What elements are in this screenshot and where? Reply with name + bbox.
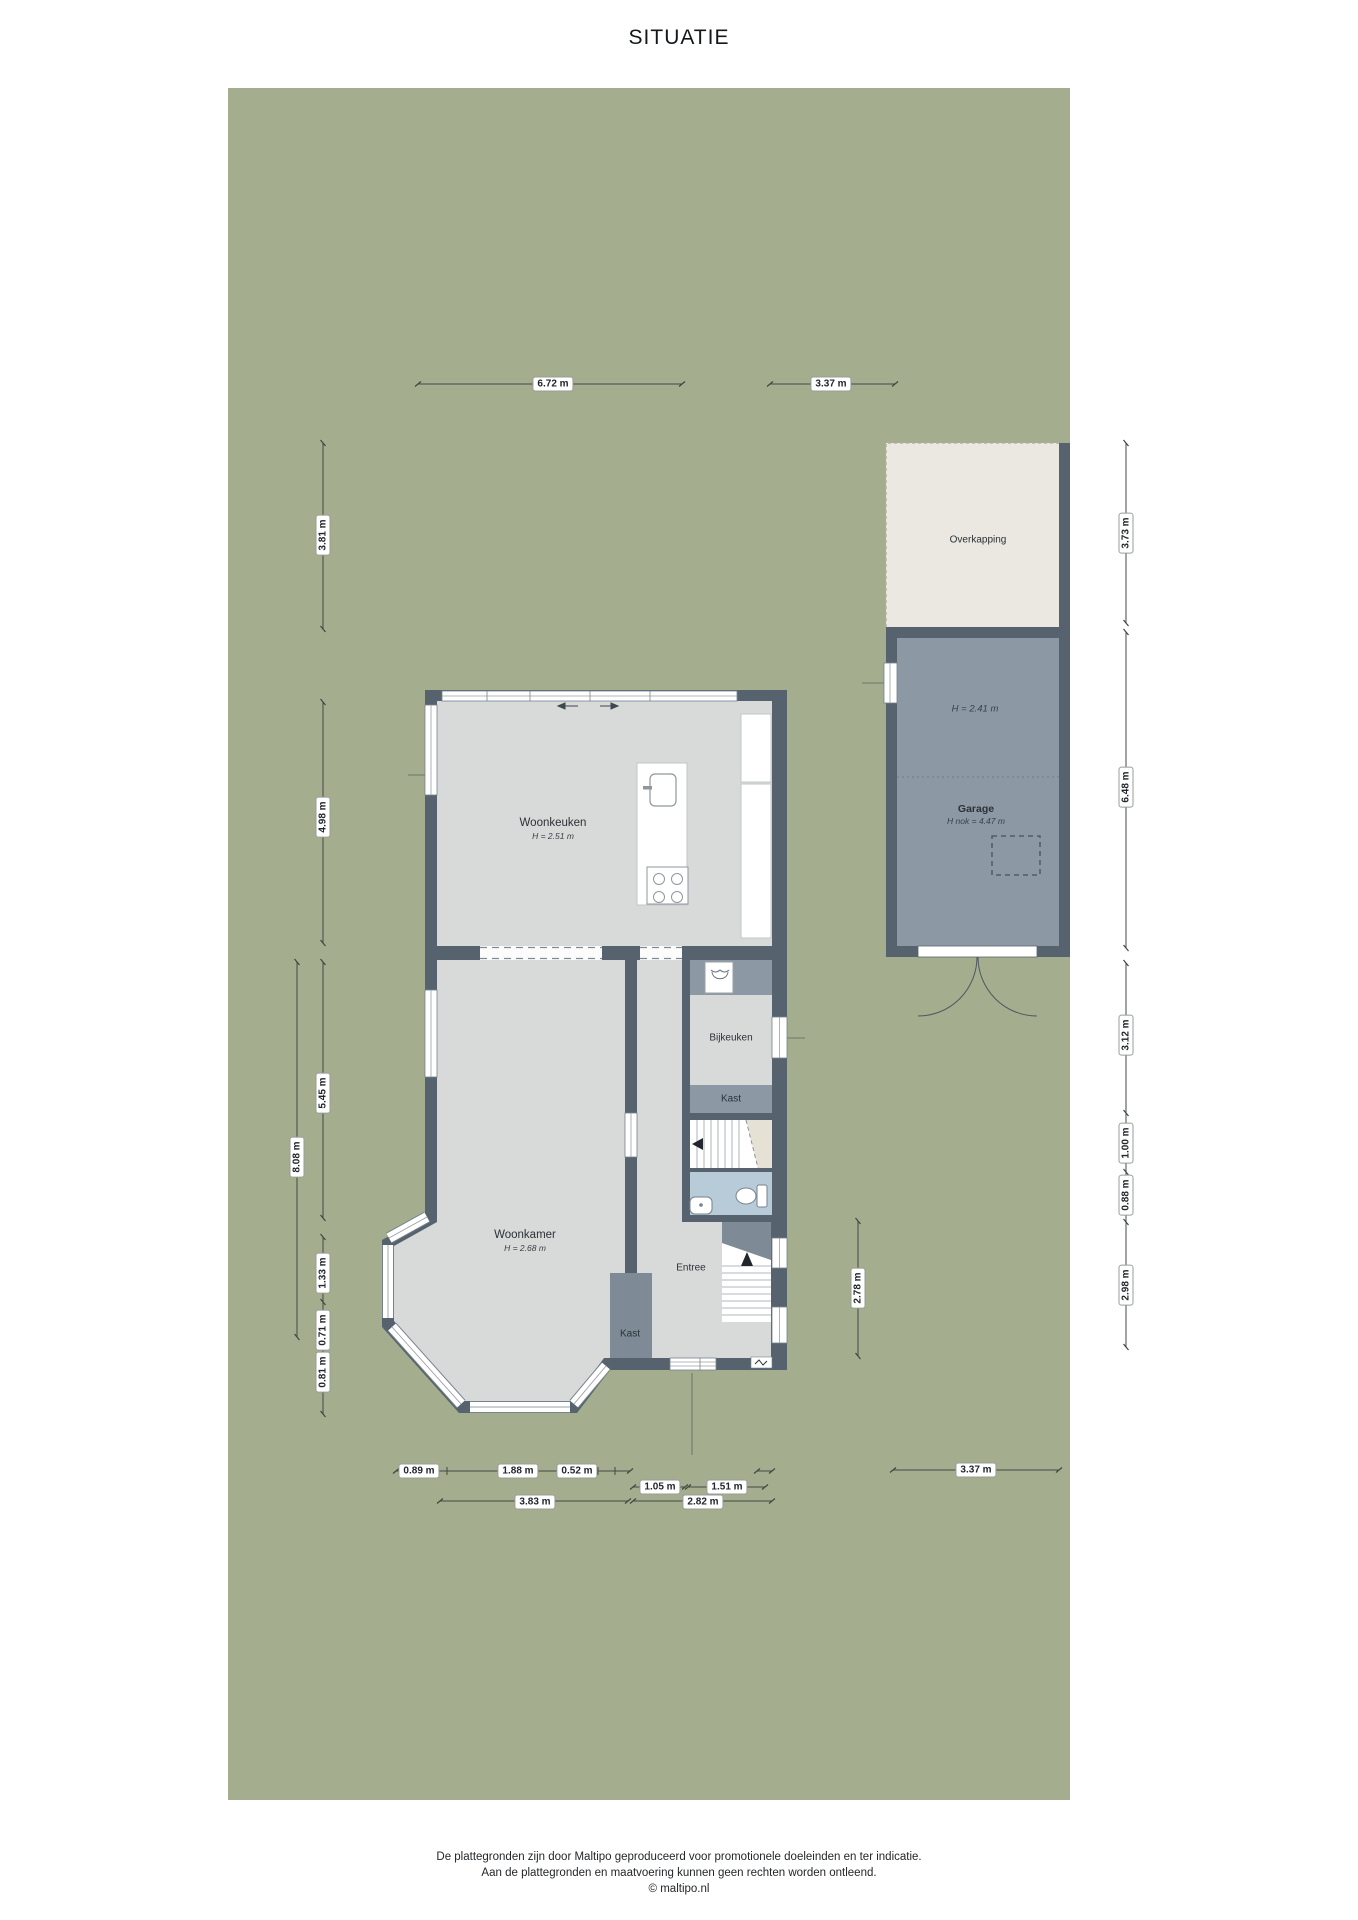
footer-copyright: © maltipo.nl [649,1883,710,1895]
footer-disclaimer-line2: Aan de plattegronden en maatvoering kunn… [481,1867,876,1879]
floorplan-graphics [0,0,1358,1920]
garage-door-opening [918,946,1037,957]
dimension-label: 4.98 m [316,796,331,837]
dimension-label: 3.83 m [514,1495,555,1510]
floorplan-page: SITUATIE Woonkeuken H = 2.51 m Woonkamer… [0,0,1358,1920]
room-height-woonkamer: H = 2.68 m [504,1243,546,1253]
dimension-label: 0.71 m [316,1309,331,1350]
doorbell-symbol [751,1357,772,1368]
room-label-kast-boven: Kast [721,1094,741,1105]
room-label-entree: Entree [676,1263,705,1274]
room-label-overkapping: Overkapping [950,535,1007,546]
dimension-label: 3.37 m [955,1463,996,1478]
room-label-kast-entree: Kast [620,1329,640,1340]
stairs-upper [690,1120,772,1168]
dimension-label: 1.51 m [706,1480,747,1495]
kitchen-island [637,763,688,905]
room-height-woonkeuken: H = 2.51 m [532,831,574,841]
dimension-label: 1.88 m [497,1464,538,1479]
room-kast-entree [610,1273,652,1358]
dimension-label: 1.00 m [1119,1122,1134,1163]
dimension-label: 2.78 m [851,1267,866,1308]
footer-disclaimer-line1: De plattegronden zijn door Maltipo gepro… [436,1851,921,1863]
dimension-label: 3.81 m [316,514,331,555]
window-right-entree-2 [772,1307,787,1343]
interior-door [625,1113,637,1157]
room-woonkeuken [437,701,772,946]
dimension-label: 1.33 m [316,1252,331,1293]
garage-side-window [884,663,897,703]
overkapping-right-wall [1059,443,1070,627]
house-structure [382,690,787,1413]
dimension-label: 0.88 m [1119,1174,1134,1215]
dimension-label: 1.05 m [639,1480,680,1495]
garage-floor [897,638,1059,946]
kitchen-cabinets [741,714,771,938]
front-door [670,1358,716,1370]
dimension-label: 3.73 m [1119,512,1134,553]
room-label-woonkeuken: Woonkeuken [520,817,587,829]
hallway [637,960,682,1222]
dimension-label: 0.52 m [556,1464,597,1479]
window-right-entree-1 [772,1238,787,1268]
hand-basin [690,1197,712,1214]
page-title: SITUATIE [629,26,730,50]
room-label-woonkamer: Woonkamer [494,1229,556,1241]
dimension-label: 0.89 m [398,1464,439,1479]
ensuite-openings [480,946,682,960]
garage-nok-height: H nok = 4.47 m [947,816,1005,826]
room-label-garage: Garage [958,803,994,815]
dimension-label: 8.08 m [290,1136,305,1177]
faucet [643,786,652,790]
window-left-woonkeuken [425,705,437,795]
dimension-label: 2.82 m [682,1495,723,1510]
window-left-woonkamer [425,990,437,1077]
dimension-label: 3.37 m [810,377,851,392]
washing-machine [705,962,733,993]
room-label-bijkeuken: Bijkeuken [709,1033,752,1044]
cooktop [647,867,688,904]
stairs-main [722,1222,771,1322]
dimension-label: 0.81 m [316,1351,331,1392]
dimension-label: 3.12 m [1119,1014,1134,1055]
dimension-label: 6.72 m [532,377,573,392]
dimension-label: 2.98 m [1119,1264,1134,1305]
window-right-bijkeuken [772,1017,787,1058]
sink [650,774,676,806]
garage-height: H = 2.41 m [952,704,999,715]
dimension-label: 6.48 m [1119,766,1134,807]
dimension-label: 5.45 m [316,1072,331,1113]
